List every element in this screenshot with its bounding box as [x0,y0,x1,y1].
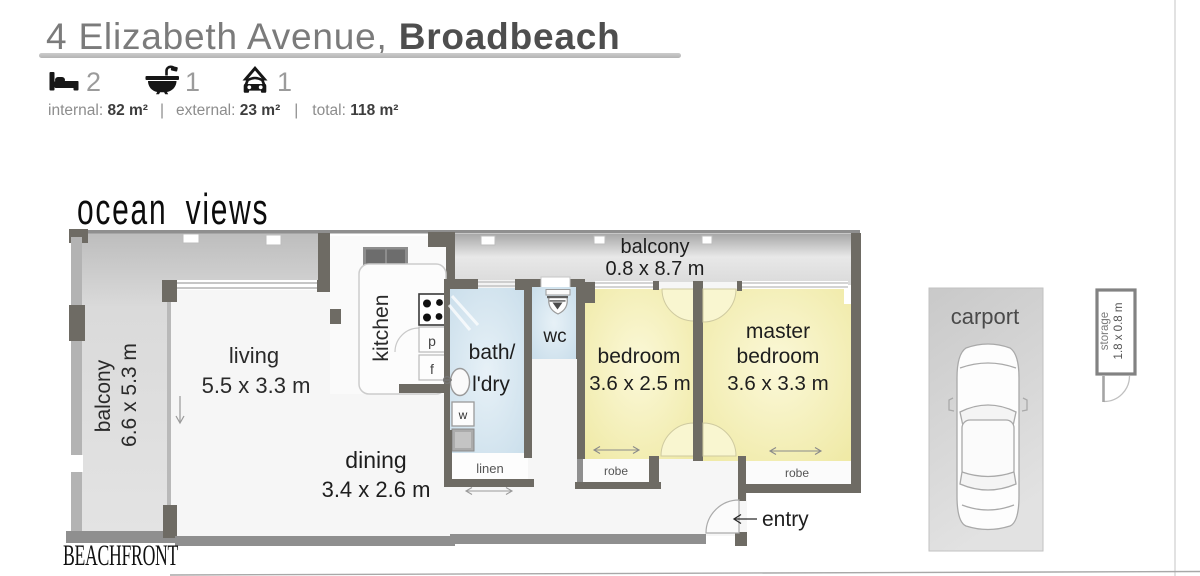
svg-text:master: master [746,320,810,343]
svg-text:3.6 x 3.3 m: 3.6 x 3.3 m [727,372,828,395]
svg-text:balcony: balcony [92,359,115,432]
svg-text:dining: dining [345,447,406,473]
svg-text:robe: robe [604,464,628,478]
svg-text:storage: storage [1099,312,1111,350]
svg-text:3.6 x 2.5 m: 3.6 x 2.5 m [589,372,690,395]
svg-text:balcony: balcony [621,236,690,258]
svg-text:w: w [458,408,468,422]
svg-text:entry: entry [762,508,809,531]
svg-text:bath/: bath/ [469,341,516,364]
svg-text:wc: wc [542,326,566,347]
svg-text:kitchen: kitchen [370,294,393,361]
svg-text:f: f [430,361,434,377]
svg-text:3.4 x 2.6 m: 3.4 x 2.6 m [322,477,431,502]
svg-text:linen: linen [476,461,503,476]
svg-text:p: p [428,333,436,349]
svg-text:1.8 x 0.8 m: 1.8 x 0.8 m [1113,303,1125,360]
svg-text:0.8 x 8.7 m: 0.8 x 8.7 m [606,258,705,280]
svg-text:robe: robe [785,466,809,480]
svg-text:6.6 x 5.3 m: 6.6 x 5.3 m [118,343,141,447]
svg-text:l'dry: l'dry [472,373,510,396]
svg-text:carport: carport [951,304,1019,329]
svg-text:living: living [229,343,279,368]
svg-text:bedroom: bedroom [598,345,681,368]
svg-text:5.5 x 3.3 m: 5.5 x 3.3 m [202,373,311,398]
svg-text:bedroom: bedroom [737,345,820,368]
